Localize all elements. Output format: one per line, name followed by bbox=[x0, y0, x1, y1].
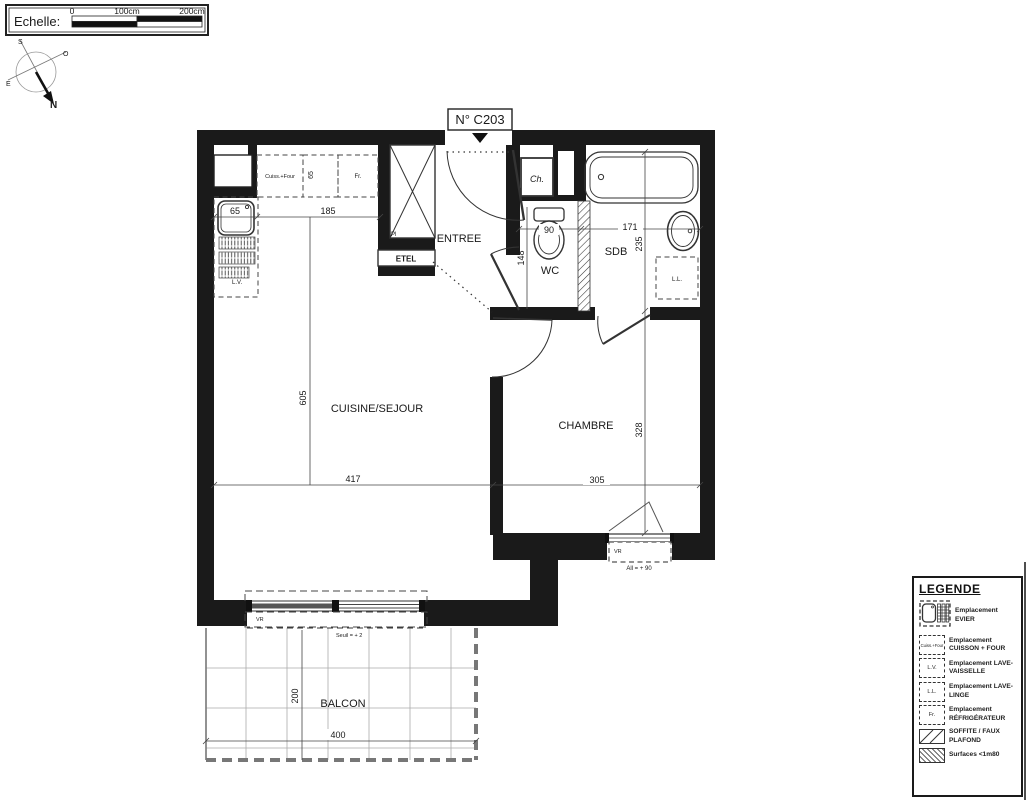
seuil-note: Seuil = + 2 bbox=[336, 633, 362, 639]
lave-vaisselle-legend-icon: L.V. bbox=[919, 658, 945, 678]
unit-number: N° C203 bbox=[455, 112, 504, 127]
dim-sdb-h: 235 bbox=[634, 236, 644, 251]
legend-label: Emplacement LAVE-VAISSELLE bbox=[949, 660, 1017, 677]
entree-zone-boundary bbox=[433, 262, 492, 312]
legend-title: LEGENDE bbox=[919, 582, 1018, 596]
vr-chambre-label: VR bbox=[614, 549, 622, 555]
wall-wc-sdb-hatched bbox=[578, 201, 590, 311]
wall-below-sdb bbox=[650, 307, 701, 320]
wall-chambre-bottom-left bbox=[493, 533, 608, 560]
legend-item-lave-linge: L.L. Emplacement LAVE-LINGE bbox=[919, 682, 1018, 702]
wall-sejour-bottom-right bbox=[424, 600, 558, 626]
floor-plan-drawing: Echelle: 0 100cm 200cm S O E N N° C203 bbox=[0, 0, 1028, 800]
legend-label: Surfaces <1m80 bbox=[949, 751, 1017, 760]
balcony-tile-grid bbox=[206, 628, 476, 760]
room-sejour: CUISINE/SEJOUR bbox=[331, 403, 423, 415]
sdb-door-swing bbox=[598, 316, 603, 344]
legend-label: Emplacement LAVE-LINGE bbox=[949, 683, 1017, 700]
wall-placard-left bbox=[378, 145, 390, 238]
dim-balcon-h: 200 bbox=[290, 688, 300, 703]
room-wc: WC bbox=[541, 265, 559, 277]
etel-label: ETEL bbox=[396, 255, 417, 264]
chambre-window: VR All = + 90 bbox=[605, 502, 674, 572]
counter-depth-dim: 65 bbox=[308, 171, 315, 179]
legend-item-evier: Emplacement EVIER bbox=[919, 600, 1018, 632]
legend-label: Emplacement RÉFRIGÉRATEUR bbox=[949, 706, 1017, 723]
dim-wc-w: 90 bbox=[544, 225, 554, 235]
legend-label: SOFFITE / FAUX PLAFOND bbox=[949, 728, 1017, 745]
soffite-legend-icon bbox=[919, 729, 945, 744]
legend-panel: LEGENDE Emplacement EVIER Cuiss.+Four Em… bbox=[912, 576, 1023, 797]
compass-o: O bbox=[63, 51, 69, 58]
legend-item-refrigerateur: Fr. Emplacement RÉFRIGÉRATEUR bbox=[919, 705, 1018, 725]
balcony: Seuil = + 2 bbox=[206, 628, 476, 760]
unit-label-group: N° C203 bbox=[448, 109, 512, 143]
wc-door-leaf bbox=[491, 254, 519, 310]
scale-tick-200: 200cm bbox=[179, 6, 205, 16]
water-heater: Ch. bbox=[521, 158, 553, 196]
scale-label: Echelle: bbox=[14, 14, 60, 29]
legend-label: Emplacement CUISSON + FOUR bbox=[949, 637, 1017, 654]
scale-tick-0: 0 bbox=[70, 6, 75, 16]
window-swing-lines bbox=[609, 502, 663, 532]
wall-placard-band1 bbox=[378, 238, 435, 250]
lave-vaisselle-label: L.V. bbox=[232, 280, 242, 286]
room-balcon: BALCON bbox=[320, 698, 365, 710]
wall-top-right bbox=[512, 130, 715, 145]
placard-label: Pl bbox=[391, 232, 396, 238]
lave-linge-legend-icon: L.L. bbox=[919, 682, 945, 702]
vr-sejour-label: VR bbox=[256, 617, 264, 623]
ch-label: Ch. bbox=[530, 174, 544, 184]
wall-sejour-bottom-left bbox=[197, 600, 247, 626]
compass-s: S bbox=[18, 39, 23, 46]
cuisson-legend-icon: Cuiss.+Four bbox=[919, 635, 945, 655]
dim-sejour-w: 417 bbox=[345, 474, 360, 484]
dim-balcon-w: 400 bbox=[330, 730, 345, 740]
room-sdb: SDB bbox=[605, 246, 628, 258]
dim-niche: 65 bbox=[230, 206, 240, 216]
entrance-pointer-icon bbox=[472, 133, 488, 143]
dim-wc-h: 148 bbox=[516, 250, 526, 265]
chambre-door-swing bbox=[492, 320, 552, 377]
compass-e: E bbox=[6, 81, 11, 88]
allege-note: All = + 90 bbox=[626, 566, 652, 572]
dim-counter: 185 bbox=[320, 206, 335, 216]
dim-chambre-h: 328 bbox=[634, 422, 644, 437]
surfaces-legend-icon bbox=[919, 748, 945, 763]
niche-box bbox=[214, 155, 252, 187]
legend-item-soffite: SOFFITE / FAUX PLAFOND bbox=[919, 728, 1018, 745]
sliding-pane-left bbox=[250, 604, 335, 609]
wall-right bbox=[700, 130, 715, 560]
legend-item-cuisson: Cuiss.+Four Emplacement CUISSON + FOUR bbox=[919, 635, 1018, 655]
bathtub-icon bbox=[585, 152, 698, 203]
washbasin-icon bbox=[668, 212, 699, 251]
sejour-window: VR bbox=[245, 591, 427, 627]
compass-rose: S O E N bbox=[6, 39, 69, 111]
scale-tick-100: 100cm bbox=[114, 6, 140, 16]
sdb-door-leaf bbox=[603, 315, 650, 344]
duct-slot bbox=[558, 151, 574, 195]
lave-linge-label: L.L. bbox=[672, 277, 682, 283]
room-entree: ENTREE bbox=[437, 233, 482, 245]
wall-chambre-bottom-right bbox=[672, 533, 715, 560]
dim-chambre-w: 305 bbox=[589, 475, 604, 485]
wall-left bbox=[197, 130, 214, 612]
dim-sejour-h: 605 bbox=[298, 390, 308, 405]
drainer-icon bbox=[219, 237, 255, 249]
wall-placard-band2 bbox=[378, 266, 435, 276]
lave-linge-box: L.L. bbox=[656, 257, 698, 299]
cuisson-four-label: Cuiss.+Four bbox=[265, 174, 295, 180]
compass-n: N bbox=[50, 100, 57, 111]
wall-top-left bbox=[197, 130, 445, 145]
fridge-legend-icon: Fr. bbox=[919, 705, 945, 725]
room-chambre: CHAMBRE bbox=[558, 420, 613, 432]
scale-bar: Echelle: 0 100cm 200cm bbox=[6, 5, 208, 35]
legend-item-surfaces: Surfaces <1m80 bbox=[919, 748, 1018, 763]
dim-sdb-w: 171 bbox=[622, 222, 637, 232]
sink-legend-icon bbox=[919, 600, 951, 632]
fridge-label: Fr. bbox=[355, 174, 362, 180]
wall-sejour-chambre bbox=[490, 377, 503, 535]
legend-item-lave-vaisselle: L.V. Emplacement LAVE-VAISSELLE bbox=[919, 658, 1018, 678]
legend-label: Emplacement EVIER bbox=[955, 607, 1018, 624]
